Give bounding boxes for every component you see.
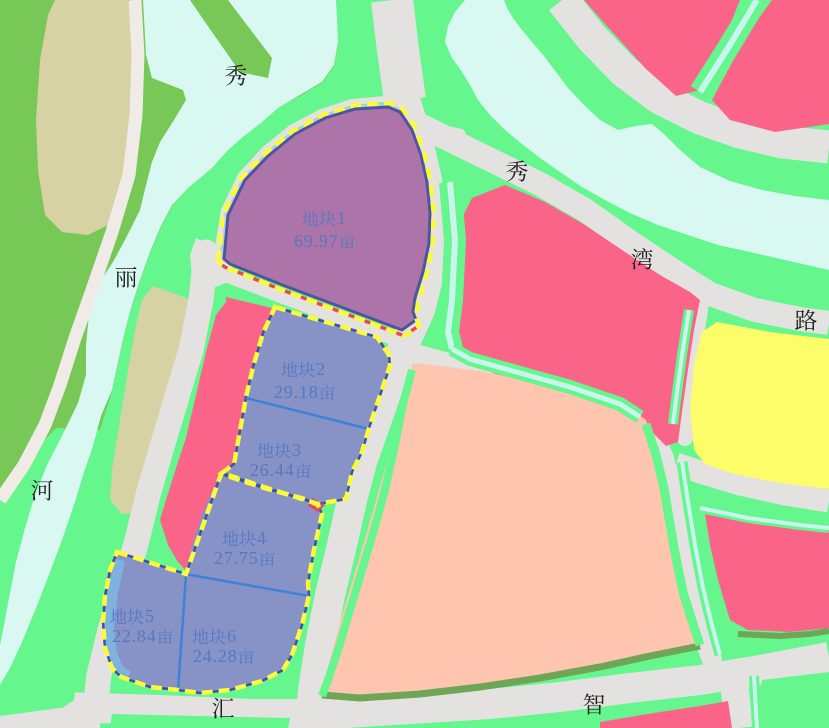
svg-text:6: 6 [227,626,236,646]
svg-text:2: 2 [316,359,325,379]
svg-text:27.75: 27.75 [214,548,259,568]
svg-text:24.28: 24.28 [193,646,238,666]
svg-text:29.18: 29.18 [274,382,319,402]
svg-text:69.97: 69.97 [294,231,339,251]
svg-text:4: 4 [257,528,266,548]
svg-text:26.44: 26.44 [250,460,295,480]
svg-text:5: 5 [145,606,154,626]
svg-text:22.84: 22.84 [112,626,157,646]
svg-text:1: 1 [337,208,346,228]
svg-text:3: 3 [292,440,301,460]
